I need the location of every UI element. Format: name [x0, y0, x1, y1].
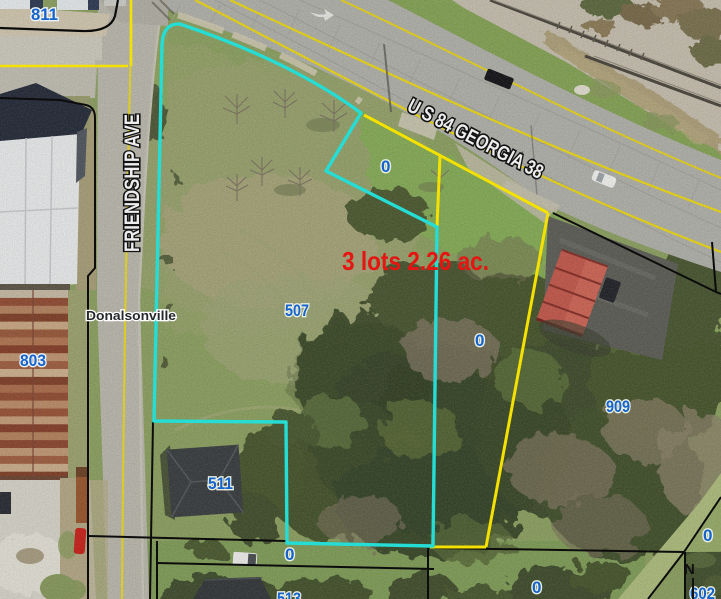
- svg-text:507: 507: [285, 301, 309, 320]
- svg-text:811: 811: [31, 5, 58, 24]
- svg-text:0: 0: [703, 526, 712, 545]
- svg-text:0: 0: [285, 545, 294, 564]
- svg-text:Donalsonville: Donalsonville: [86, 309, 176, 323]
- svg-text:FRIENDSHIP AVE: FRIENDSHIP AVE: [121, 114, 144, 252]
- svg-text:3 lots 2.26 ac.: 3 lots 2.26 ac.: [342, 246, 489, 276]
- svg-text:513: 513: [277, 589, 301, 599]
- svg-text:909: 909: [606, 397, 630, 416]
- svg-text:511: 511: [208, 474, 233, 493]
- svg-text:0: 0: [381, 157, 390, 176]
- svg-text:N: N: [684, 561, 695, 578]
- svg-text:0: 0: [532, 578, 541, 597]
- svg-text:0: 0: [475, 331, 484, 350]
- svg-text:803: 803: [20, 351, 46, 370]
